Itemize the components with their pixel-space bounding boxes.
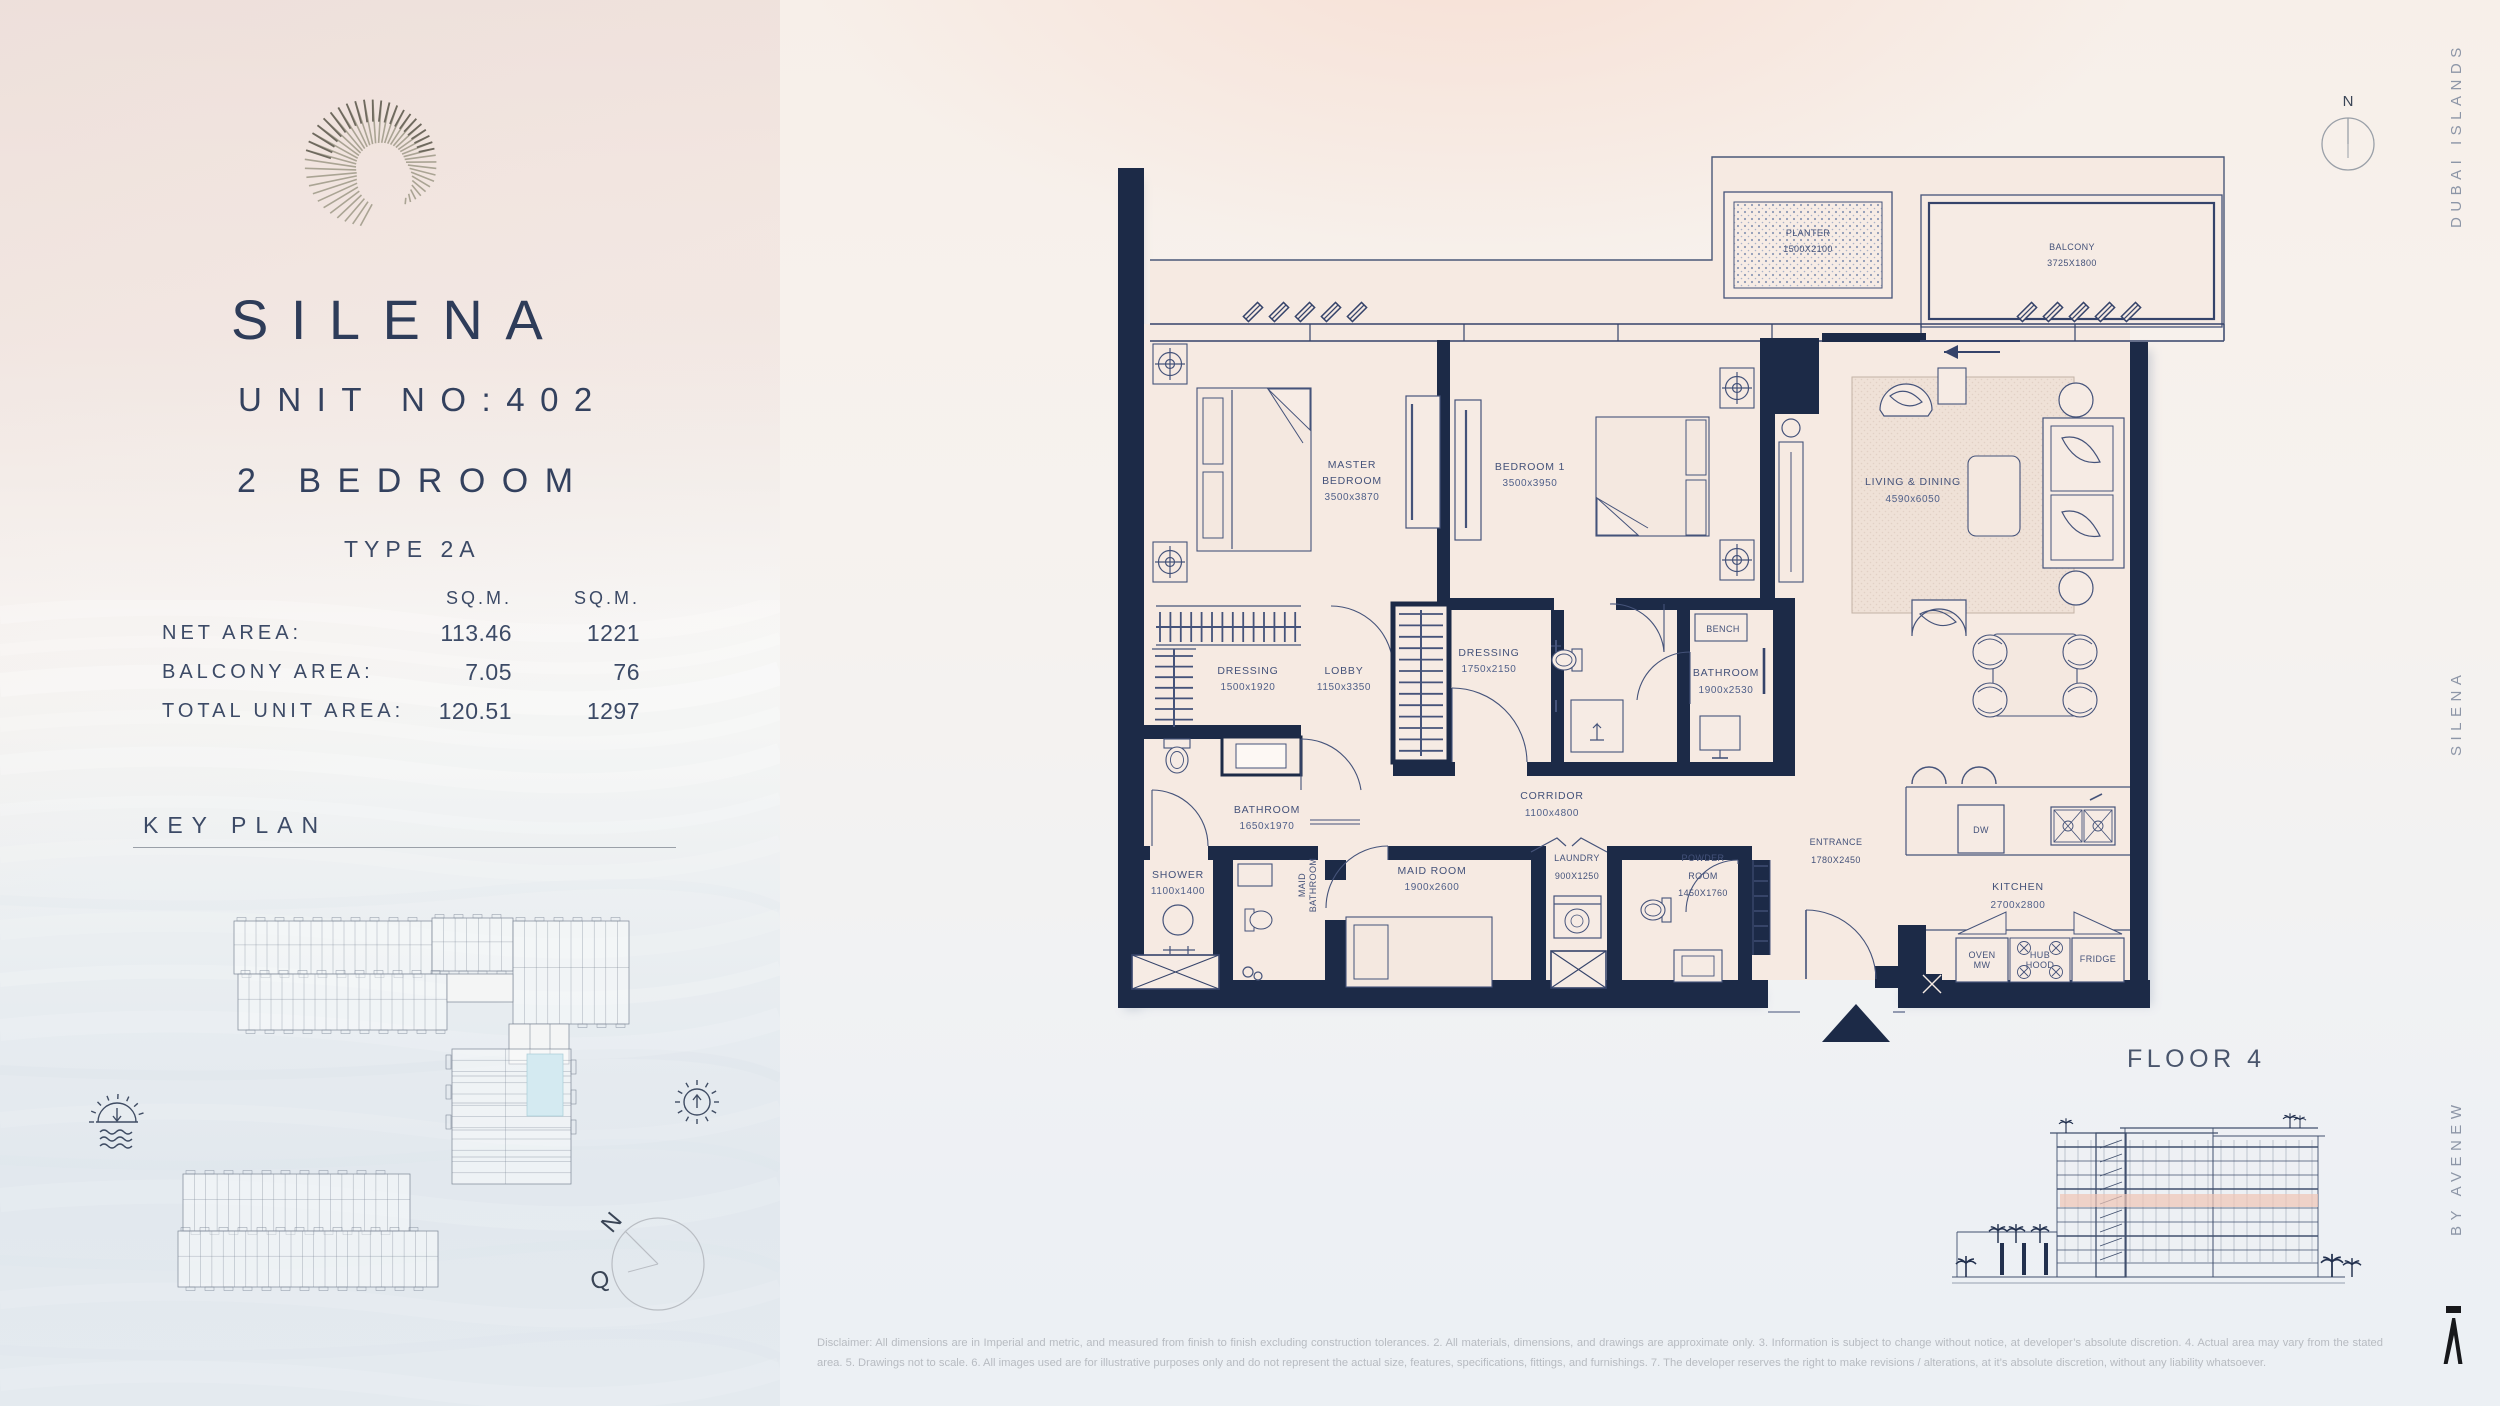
svg-text:LIVING & DINING: LIVING & DINING <box>1865 476 1961 488</box>
svg-text:1750x2150: 1750x2150 <box>1462 664 1517 675</box>
svg-text:N: N <box>2343 93 2354 110</box>
svg-text:3725X1800: 3725X1800 <box>2047 258 2097 268</box>
svg-text:BATHROOM: BATHROOM <box>1234 804 1300 816</box>
svg-text:900X1250: 900X1250 <box>1555 871 1599 881</box>
svg-text:FRIDGE: FRIDGE <box>2080 954 2116 964</box>
svg-text:3500x3950: 3500x3950 <box>1503 478 1558 489</box>
svg-text:Q: Q <box>588 1265 613 1296</box>
svg-text:BEDROOM 1: BEDROOM 1 <box>1495 461 1565 473</box>
svg-text:LAUNDRY: LAUNDRY <box>1554 853 1600 863</box>
svg-text:1780X2450: 1780X2450 <box>1811 855 1861 865</box>
svg-text:MASTER: MASTER <box>1328 459 1377 471</box>
svg-text:BATHROOM: BATHROOM <box>1308 858 1318 913</box>
svg-text:HUB: HUB <box>2030 950 2050 960</box>
svg-text:ROOM: ROOM <box>1688 871 1718 881</box>
svg-text:SHOWER: SHOWER <box>1152 869 1204 881</box>
svg-text:1150x3350: 1150x3350 <box>1317 682 1371 693</box>
svg-text:BENCH: BENCH <box>1706 624 1740 634</box>
svg-text:KITCHEN: KITCHEN <box>1992 881 2044 893</box>
svg-text:1500X2100: 1500X2100 <box>1783 244 1833 254</box>
svg-text:1450X1760: 1450X1760 <box>1678 888 1728 898</box>
svg-text:HOOD: HOOD <box>2026 960 2055 970</box>
svg-text:3500x3870: 3500x3870 <box>1325 492 1380 503</box>
svg-text:LOBBY: LOBBY <box>1324 665 1363 677</box>
svg-text:1100x4800: 1100x4800 <box>1525 808 1579 819</box>
svg-text:POWDER: POWDER <box>1682 853 1725 863</box>
svg-text:MAID: MAID <box>1297 873 1307 897</box>
svg-text:1900x2530: 1900x2530 <box>1699 685 1754 696</box>
svg-text:2700x2800: 2700x2800 <box>1991 900 2046 911</box>
svg-text:MAID ROOM: MAID ROOM <box>1397 865 1466 877</box>
svg-text:BEDROOM: BEDROOM <box>1322 475 1382 487</box>
svg-text:MW: MW <box>1974 960 1991 970</box>
svg-text:4590x6050: 4590x6050 <box>1886 494 1941 505</box>
svg-text:PLANTER: PLANTER <box>1786 228 1830 238</box>
svg-text:CORRIDOR: CORRIDOR <box>1520 790 1584 802</box>
svg-text:ENTRANCE: ENTRANCE <box>1810 837 1863 847</box>
svg-text:BATHROOM: BATHROOM <box>1693 667 1759 679</box>
svg-text:1500x1920: 1500x1920 <box>1221 682 1276 693</box>
svg-text:BALCONY: BALCONY <box>2049 242 2095 252</box>
svg-text:1900x2600: 1900x2600 <box>1405 882 1460 893</box>
svg-text:DW: DW <box>1973 825 1989 835</box>
svg-text:N: N <box>596 1207 628 1238</box>
svg-text:DRESSING: DRESSING <box>1458 647 1519 659</box>
svg-text:OVEN: OVEN <box>1968 950 1995 960</box>
svg-text:1100x1400: 1100x1400 <box>1151 886 1205 897</box>
svg-text:1650x1970: 1650x1970 <box>1240 821 1295 832</box>
svg-text:DRESSING: DRESSING <box>1217 665 1278 677</box>
